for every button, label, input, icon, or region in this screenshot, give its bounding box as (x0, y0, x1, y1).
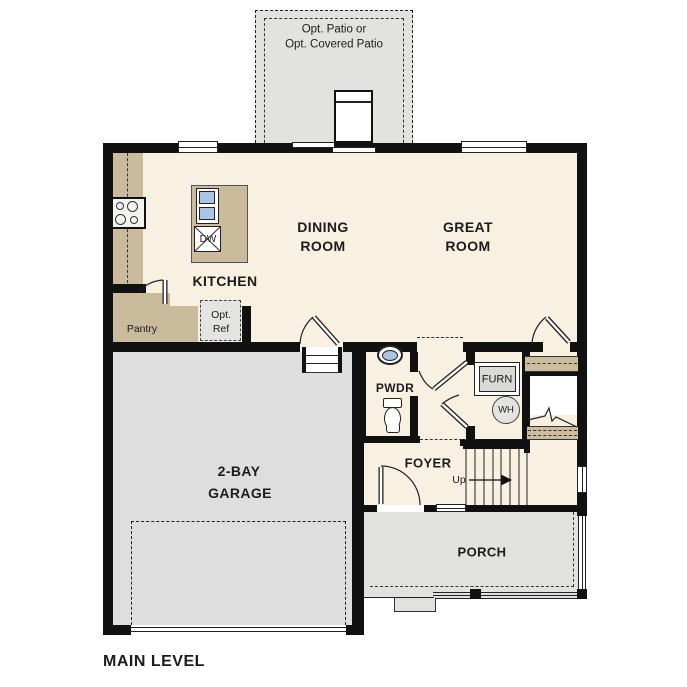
stair-break-line (528, 408, 577, 427)
garage-label-line1: 2-BAY (218, 464, 261, 478)
stairs-up-label: Up (452, 475, 465, 486)
plan-title: MAIN LEVEL (103, 654, 205, 670)
dining-room-label-line1: DINING (297, 220, 348, 234)
dining-room-label-line2: ROOM (300, 239, 345, 253)
foyer-label: FOYER (405, 457, 452, 470)
dishwasher-x (195, 227, 220, 251)
garage-label-line2: GARAGE (208, 486, 272, 500)
plan-linework (0, 0, 687, 687)
great-room-label-line2: ROOM (445, 239, 490, 253)
porch-label: PORCH (458, 546, 507, 559)
floor-plan: Opt. Patio or Opt. Covered Patio (0, 0, 687, 687)
kitchen-label: KITCHEN (192, 274, 257, 288)
pwdr-label: PWDR (376, 382, 414, 394)
great-room-label-line1: GREAT (443, 220, 493, 234)
